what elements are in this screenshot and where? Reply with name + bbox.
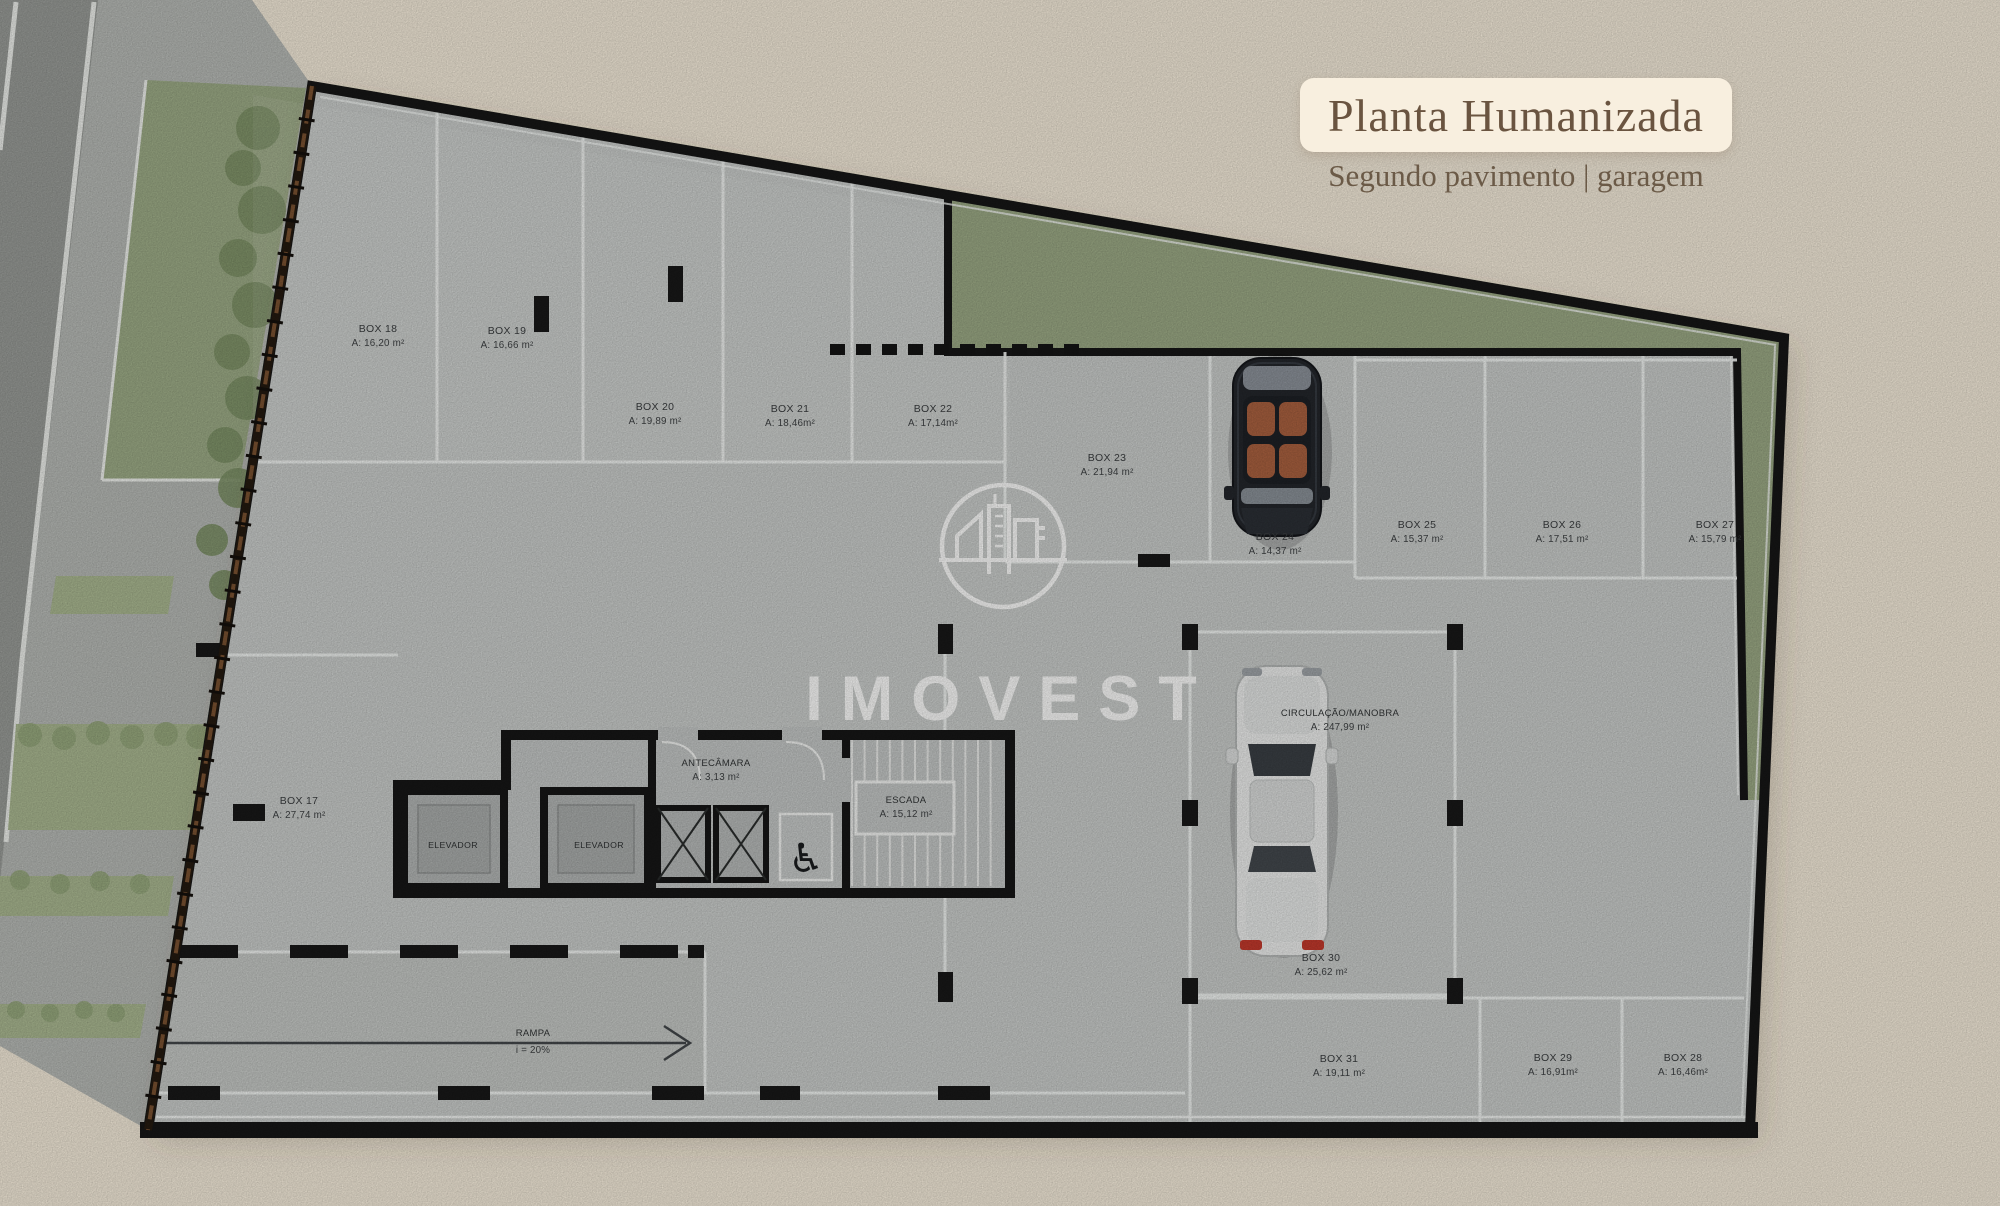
stall-area: A: 19,89 m² (629, 416, 682, 427)
stall-area: A: 17,14m² (908, 418, 958, 429)
room-name: ELEVADOR (574, 840, 624, 850)
ramp-name: RAMPA (516, 1028, 551, 1039)
stall-area: A: 16,66 m² (481, 340, 534, 351)
stall-name: BOX 30 (1302, 952, 1341, 964)
elevator-cab-2 (558, 805, 634, 873)
car-dark (1224, 354, 1332, 550)
stall-name: BOX 18 (359, 323, 398, 335)
stall-name: BOX 25 (1398, 519, 1437, 531)
stall-area: A: 16,91m² (1528, 1067, 1578, 1078)
stall-area: A: 19,11 m² (1313, 1068, 1366, 1079)
stall-area: A: 17,51 m² (1536, 534, 1589, 545)
stall-name: BOX 23 (1088, 452, 1127, 464)
room-area: A: 247,99 m² (1311, 722, 1370, 733)
stall-name: BOX 21 (771, 403, 810, 415)
stair-landing (856, 782, 954, 834)
door-opening (658, 727, 698, 743)
brand-wordmark: IMOVEST (805, 664, 1215, 734)
page-subtitle: Segundo pavimento | garagem (1300, 158, 1732, 194)
room-label: ELEVADOR (574, 840, 624, 850)
stall-name: BOX 27 (1696, 519, 1735, 531)
stall-area: A: 25,62 m² (1295, 967, 1348, 978)
page-title: Planta Humanizada (1328, 89, 1704, 142)
room-name: ESCADA (886, 795, 927, 806)
stall-area: A: 14,37 m² (1249, 546, 1302, 557)
stall-area: A: 16,20 m² (352, 338, 405, 349)
room-name: ANTECÂMARA (682, 758, 751, 769)
room-name: CIRCULAÇÃO/MANOBRA (1281, 708, 1400, 719)
ramp-strip (154, 952, 705, 1093)
stall-area: A: 21,94 m² (1081, 467, 1134, 478)
stall-area: A: 15,37 m² (1391, 534, 1444, 545)
stall-name: BOX 29 (1534, 1052, 1573, 1064)
stall-area: A: 18,46m² (765, 418, 815, 429)
room-area: A: 15,12 m² (880, 809, 933, 820)
room-label: ELEVADOR (428, 840, 478, 850)
stall-name: BOX 24 (1256, 531, 1295, 543)
stall-name: BOX 19 (488, 325, 527, 337)
bottom-boundary-wall (140, 1122, 1758, 1138)
stall-area: A: 16,46m² (1658, 1067, 1708, 1078)
stall-name: BOX 28 (1664, 1052, 1703, 1064)
ramp-slope: i = 20% (516, 1045, 550, 1056)
stall-area: A: 27,74 m² (273, 810, 326, 821)
room-area: A: 3,13 m² (692, 772, 740, 783)
stall-name: BOX 20 (636, 401, 675, 413)
stall-area: A: 15,79 m² (1689, 534, 1742, 545)
room-name: ELEVADOR (428, 840, 478, 850)
stall-name: BOX 17 (280, 795, 319, 807)
stall-name: BOX 22 (914, 403, 953, 415)
floorplan-poster: ♿ (0, 0, 2000, 1206)
wheelchair-icon: ♿ (788, 836, 824, 882)
stall-name: BOX 31 (1320, 1053, 1359, 1065)
title-card: Planta Humanizada (1300, 78, 1732, 152)
stall-name: BOX 26 (1543, 519, 1582, 531)
elevator-cab-1 (418, 805, 490, 873)
